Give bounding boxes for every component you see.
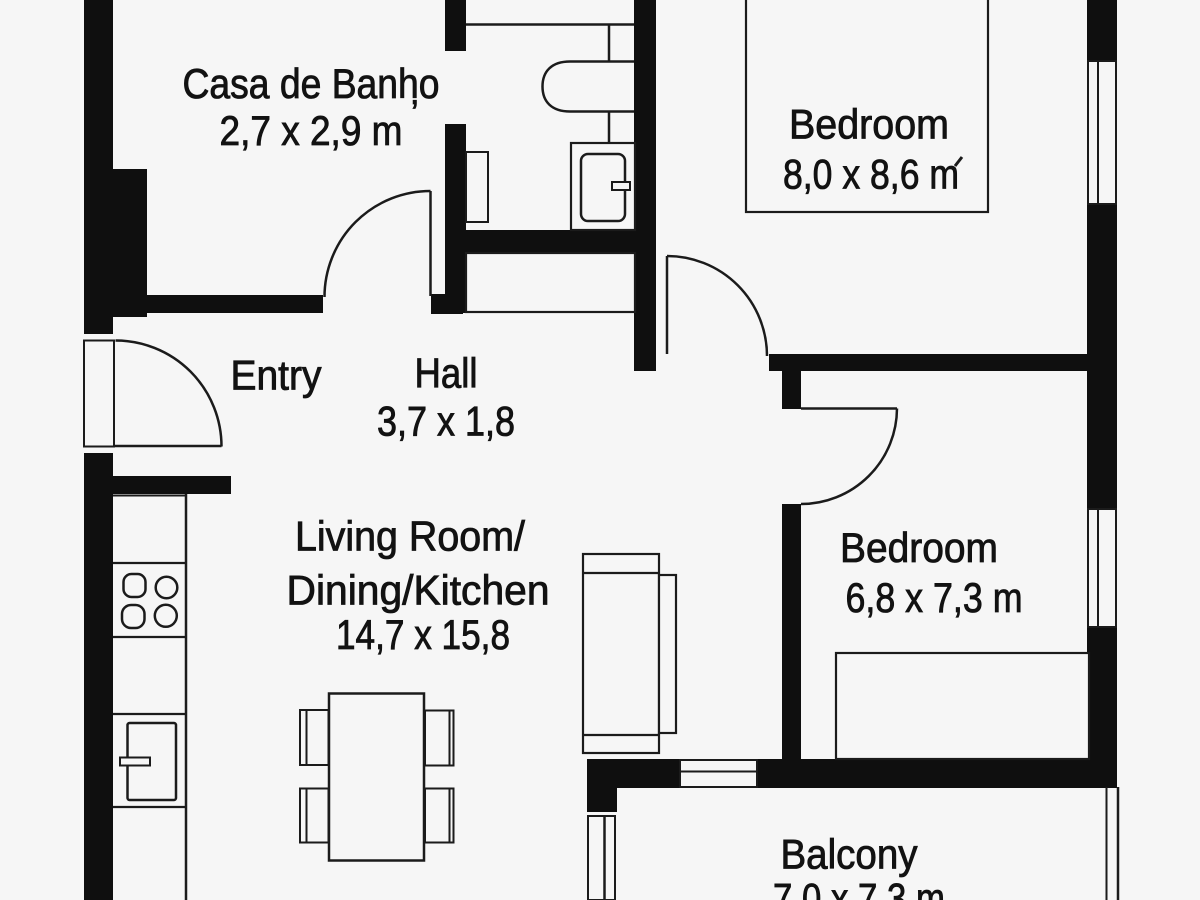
svg-text:7,0 x 7,3 m: 7,0 x 7,3 m <box>773 875 945 900</box>
svg-text:Casa de Banho: Casa de Banho <box>183 60 440 107</box>
svg-text:,: , <box>410 74 419 112</box>
svg-text:Bedroom: Bedroom <box>840 524 998 571</box>
svg-text:2,7 x 2,9 m: 2,7 x 2,9 m <box>220 107 403 154</box>
svg-text:Bedroom: Bedroom <box>789 101 949 148</box>
svg-text:Balcony: Balcony <box>781 831 918 878</box>
svg-text:Dining/Kitchen: Dining/Kitchen <box>287 567 550 614</box>
svg-text:3,7 x 1,8: 3,7 x 1,8 <box>377 398 515 445</box>
svg-text:14,7 x 15,8: 14,7 x 15,8 <box>336 611 510 658</box>
svg-text:6,8 x 7,3 m: 6,8 x 7,3 m <box>846 574 1023 621</box>
svg-text:Living Room/: Living Room/ <box>295 513 525 560</box>
svg-text:Hall: Hall <box>415 350 478 397</box>
svg-text:8,0 x 8,6 m: 8,0 x 8,6 m <box>783 151 959 198</box>
svg-text:Entry: Entry <box>231 352 322 399</box>
